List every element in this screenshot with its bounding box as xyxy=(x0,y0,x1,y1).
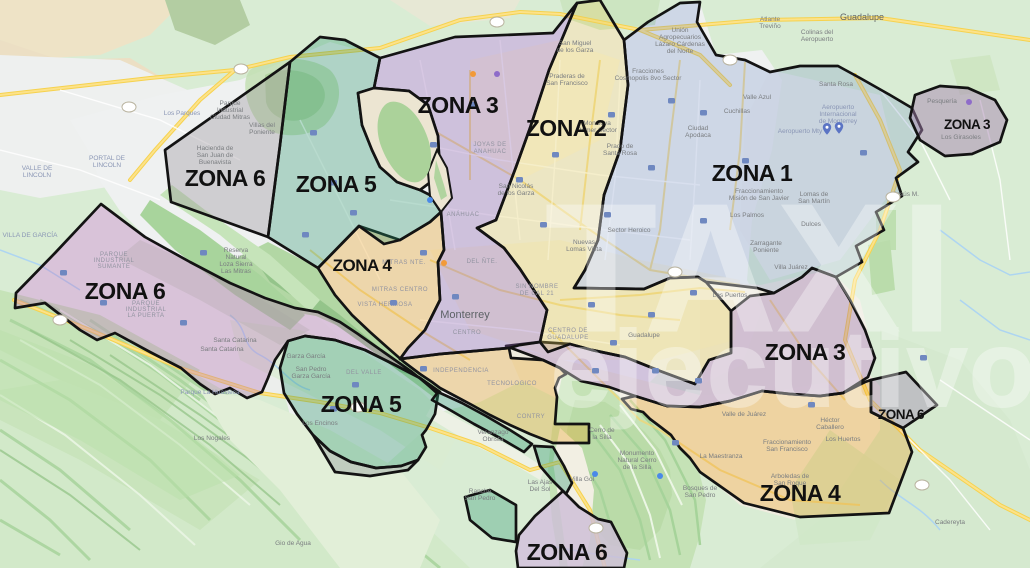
svg-text:Sector Heroico: Sector Heroico xyxy=(608,227,651,234)
svg-text:Fraccionamiento: Fraccionamiento xyxy=(763,439,811,446)
svg-text:Industrial: Industrial xyxy=(217,107,244,114)
svg-text:Rancho: Rancho xyxy=(469,488,492,495)
svg-text:Pesquería: Pesquería xyxy=(927,98,957,105)
svg-text:DEL VALLE: DEL VALLE xyxy=(346,370,382,376)
svg-text:Los Puertos: Los Puertos xyxy=(713,292,748,299)
svg-text:DE CAL 21: DE CAL 21 xyxy=(520,291,554,297)
svg-text:ZONA 3: ZONA 3 xyxy=(418,92,499,118)
svg-text:Los Palmos: Los Palmos xyxy=(730,212,765,219)
svg-text:Poniente: Poniente xyxy=(249,129,275,136)
svg-text:Lomas de: Lomas de xyxy=(800,191,829,198)
svg-text:CENTRO: CENTRO xyxy=(453,330,481,336)
svg-text:San Miguel: San Miguel xyxy=(559,40,592,47)
svg-text:Treviño: Treviño xyxy=(759,23,781,30)
svg-text:Arboledas de: Arboledas de xyxy=(771,473,810,480)
svg-text:Villa Juárez: Villa Juárez xyxy=(774,264,807,271)
svg-text:Las Mitras: Las Mitras xyxy=(221,268,252,275)
svg-text:de la Silla: de la Silla xyxy=(623,464,652,471)
svg-text:Monumento: Monumento xyxy=(620,450,655,457)
svg-text:Los Girasoles: Los Girasoles xyxy=(941,134,981,141)
svg-text:Natural Cerro: Natural Cerro xyxy=(617,457,656,464)
svg-text:ZONA 6: ZONA 6 xyxy=(85,278,166,304)
svg-text:Parque La Huasteca: Parque La Huasteca xyxy=(180,389,240,396)
svg-text:Natural: Natural xyxy=(226,254,248,261)
svg-text:Santa Catarina: Santa Catarina xyxy=(200,346,244,353)
svg-text:Cosmopolis 8vo Sector: Cosmopolis 8vo Sector xyxy=(615,75,683,82)
svg-text:ZONA 5: ZONA 5 xyxy=(321,391,402,417)
svg-text:San Pedro: San Pedro xyxy=(296,366,327,373)
svg-text:Fracciones: Fracciones xyxy=(632,68,665,75)
svg-text:Agropecuarios: Agropecuarios xyxy=(659,34,702,41)
svg-text:Parque: Parque xyxy=(220,100,241,107)
svg-text:San Francisco: San Francisco xyxy=(546,80,588,87)
svg-text:MITRAS CENTRO: MITRAS CENTRO xyxy=(372,287,428,293)
svg-text:Lomas Vista: Lomas Vista xyxy=(566,246,602,253)
svg-text:Reserva: Reserva xyxy=(224,247,249,254)
svg-text:San Pedro: San Pedro xyxy=(685,492,716,499)
svg-text:Valle Azul: Valle Azul xyxy=(743,94,772,101)
svg-text:ZONA 6: ZONA 6 xyxy=(527,539,608,565)
svg-text:Misión de San Javier: Misión de San Javier xyxy=(729,195,790,202)
svg-text:Poniente: Poniente xyxy=(753,247,779,254)
svg-text:San Martín: San Martín xyxy=(798,198,830,205)
svg-text:ejecutivo: ejecutivo xyxy=(551,308,1030,429)
svg-text:Guadalupe: Guadalupe xyxy=(628,332,660,339)
svg-text:LINCOLN: LINCOLN xyxy=(93,162,121,169)
svg-text:ANAHUAC: ANAHUAC xyxy=(474,149,507,155)
svg-text:Loza Sierra: Loza Sierra xyxy=(219,261,253,268)
svg-text:VILLA DE GARCÍA: VILLA DE GARCÍA xyxy=(3,230,59,239)
svg-text:Unión: Unión xyxy=(672,27,689,34)
svg-text:SUMANTE: SUMANTE xyxy=(98,264,131,270)
svg-text:Cuchillas: Cuchillas xyxy=(724,108,751,115)
svg-text:San Francisco: San Francisco xyxy=(766,446,808,453)
svg-text:Las Ajas: Las Ajas xyxy=(528,479,553,486)
svg-text:Cerro de: Cerro de xyxy=(589,427,615,434)
svg-text:Internacional: Internacional xyxy=(819,111,857,118)
svg-text:ZONA 6: ZONA 6 xyxy=(185,165,266,191)
svg-text:Del Sol: Del Sol xyxy=(530,486,552,493)
svg-text:Hacienda de: Hacienda de xyxy=(197,145,234,152)
svg-text:Ciudad Mitras: Ciudad Mitras xyxy=(210,114,251,121)
svg-text:Aeropuerto Mty: Aeropuerto Mty xyxy=(778,128,823,135)
svg-text:Villa Gol: Villa Gol xyxy=(570,476,595,483)
svg-text:ZONA 6: ZONA 6 xyxy=(878,407,925,422)
svg-text:Bosques de: Bosques de xyxy=(683,485,718,492)
svg-text:INDEPENDENCIA: INDEPENDENCIA xyxy=(433,368,489,374)
svg-text:Villas del: Villas del xyxy=(249,122,275,129)
svg-text:Atlante: Atlante xyxy=(760,16,781,23)
svg-text:San Pedro: San Pedro xyxy=(465,495,496,502)
svg-text:ZONA 3: ZONA 3 xyxy=(765,339,846,365)
svg-text:Guadalupe: Guadalupe xyxy=(840,12,884,22)
svg-text:Los Encinos: Los Encinos xyxy=(302,420,338,427)
svg-text:Valle de Juárez: Valle de Juárez xyxy=(722,411,766,418)
svg-text:ZONA 2: ZONA 2 xyxy=(526,115,607,141)
svg-text:Los Nogales: Los Nogales xyxy=(194,435,231,442)
svg-text:Lázaro Cárdenas: Lázaro Cárdenas xyxy=(655,41,706,48)
svg-text:Praderas de: Praderas de xyxy=(549,73,585,80)
svg-text:Monterrey: Monterrey xyxy=(440,309,490,321)
svg-text:Gio de Agua: Gio de Agua xyxy=(275,540,311,547)
svg-text:Cadereyta: Cadereyta xyxy=(935,519,965,526)
svg-text:DEL ÑTE.: DEL ÑTE. xyxy=(467,258,498,265)
svg-text:Zarragante: Zarragante xyxy=(750,240,782,247)
svg-text:San Nicolás: San Nicolás xyxy=(499,183,534,190)
svg-text:ANÁHUAC: ANÁHUAC xyxy=(447,211,480,218)
svg-text:JOYAS DE: JOYAS DE xyxy=(473,142,506,148)
svg-text:Garza García: Garza García xyxy=(291,373,330,380)
svg-text:Los Parques: Los Parques xyxy=(164,110,201,117)
svg-text:la Silla: la Silla xyxy=(592,434,612,441)
svg-text:Santa Rosa: Santa Rosa xyxy=(819,81,853,88)
svg-text:de los Garza: de los Garza xyxy=(557,47,594,54)
svg-text:Héctor: Héctor xyxy=(820,417,840,424)
svg-text:del Norte: del Norte xyxy=(667,48,694,55)
svg-text:ZONA 5: ZONA 5 xyxy=(296,171,377,197)
svg-text:San Juan de: San Juan de xyxy=(197,152,234,159)
svg-text:Obrista: Obrista xyxy=(483,436,504,443)
svg-text:Aeropuerto: Aeropuerto xyxy=(801,36,834,43)
svg-text:Santa Catarina: Santa Catarina xyxy=(213,337,257,344)
svg-text:Aeropuerto: Aeropuerto xyxy=(822,104,855,111)
svg-text:LINCOLN: LINCOLN xyxy=(23,172,51,179)
svg-text:Dulces: Dulces xyxy=(801,221,822,228)
svg-text:Santa Rosa: Santa Rosa xyxy=(603,150,637,157)
svg-text:TECNOLOGICO: TECNOLOGICO xyxy=(487,381,537,387)
svg-text:CONTRY: CONTRY xyxy=(517,414,545,420)
svg-text:Nuevas: Nuevas xyxy=(573,239,596,246)
svg-text:LA PUERTA: LA PUERTA xyxy=(128,313,165,319)
svg-text:Caballero: Caballero xyxy=(816,424,844,431)
svg-text:La Maestranza: La Maestranza xyxy=(700,453,743,460)
svg-text:Ciudad: Ciudad xyxy=(688,125,709,132)
svg-text:VALLE DE: VALLE DE xyxy=(22,165,53,172)
svg-text:ZONA 1: ZONA 1 xyxy=(712,160,793,186)
svg-text:ZONA 3: ZONA 3 xyxy=(944,117,991,132)
svg-text:Prado de: Prado de xyxy=(607,143,634,150)
svg-text:VISTA HERMOSA: VISTA HERMOSA xyxy=(357,302,412,308)
svg-text:CENTRO DE: CENTRO DE xyxy=(548,328,588,334)
svg-text:PORTAL DE: PORTAL DE xyxy=(89,155,126,162)
svg-text:Veranzago: Veranzago xyxy=(477,429,508,436)
svg-text:GUADALUPE: GUADALUPE xyxy=(547,335,589,341)
svg-text:SIN NOMBRE: SIN NOMBRE xyxy=(515,284,558,290)
svg-text:Fraccionamiento: Fraccionamiento xyxy=(735,188,783,195)
svg-text:de los Garza: de los Garza xyxy=(498,190,535,197)
svg-text:Los Huertos: Los Huertos xyxy=(825,436,861,443)
svg-text:Garza García: Garza García xyxy=(286,353,325,360)
svg-text:ZONA 4: ZONA 4 xyxy=(333,256,393,275)
svg-text:Colinas del: Colinas del xyxy=(801,29,834,36)
svg-text:Apodaca: Apodaca xyxy=(685,132,711,139)
svg-text:ZONA 4: ZONA 4 xyxy=(760,480,841,506)
